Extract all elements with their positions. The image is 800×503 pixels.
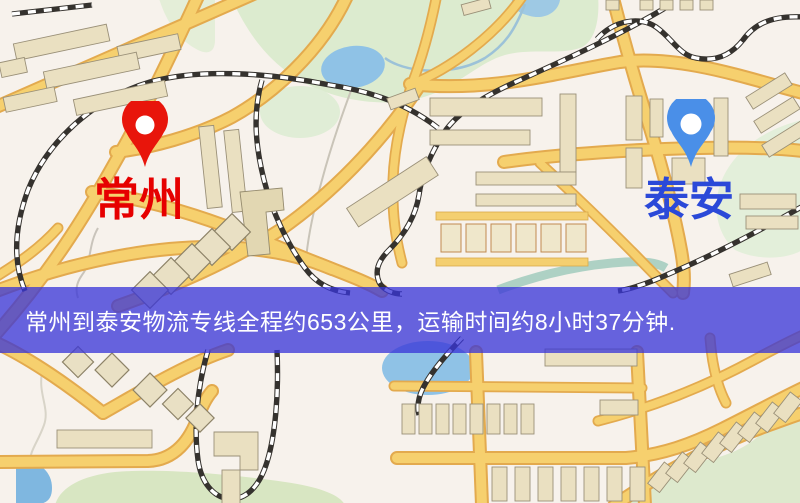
red-map-pin-icon [119,101,171,169]
route-info-banner: 常州到泰安物流专线全程约653公里，运输时间约8小时37分钟. [0,287,800,353]
destination-pin [664,99,718,174]
map-canvas [0,0,800,503]
route-info-text: 常州到泰安物流专线全程约653公里，运输时间约8小时37分钟. [25,303,676,337]
origin-city-label: 常州 [94,178,184,223]
blue-map-pin-icon [664,99,718,169]
logistics-route-map: 常州 泰安 常州到泰安物流专线全程约653公里，运输时间约8小时37分钟. [0,0,800,503]
origin-pin [119,101,171,174]
destination-city-label: 泰安 [644,178,734,223]
